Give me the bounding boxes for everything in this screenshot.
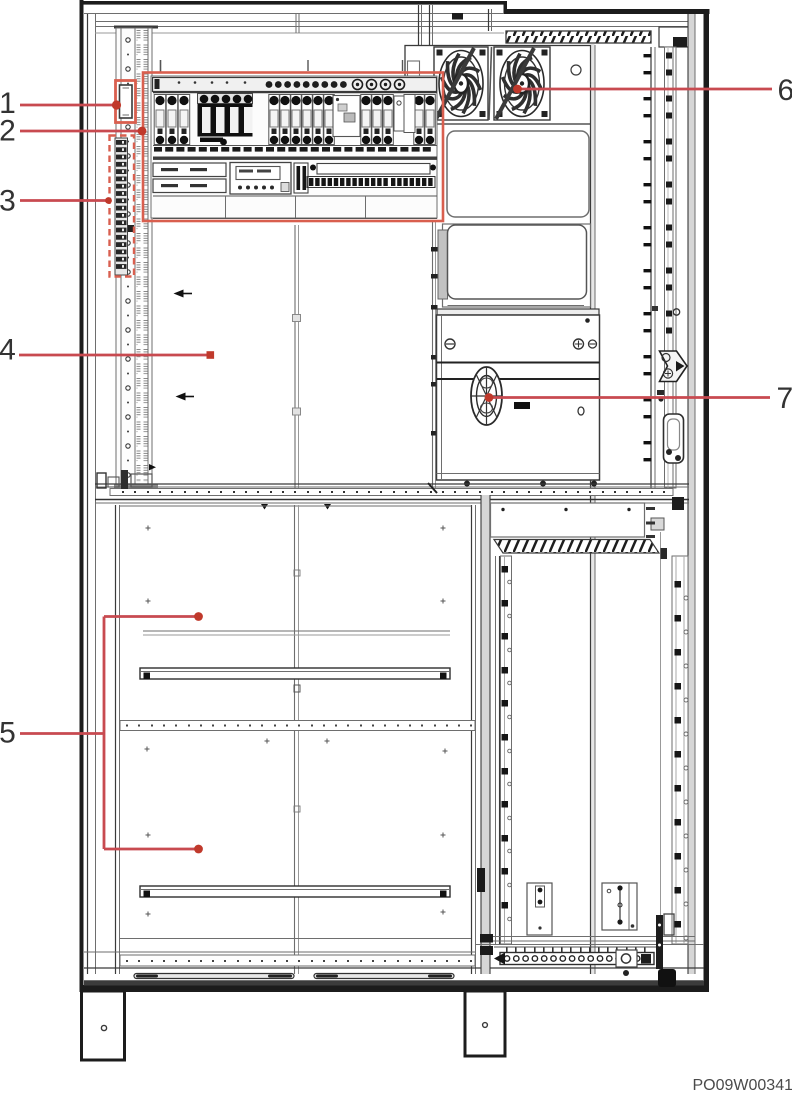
svg-text:6: 6 bbox=[778, 74, 792, 107]
svg-text:3: 3 bbox=[0, 185, 16, 218]
svg-text:2: 2 bbox=[0, 115, 16, 148]
svg-text:4: 4 bbox=[0, 334, 16, 367]
svg-text:7: 7 bbox=[777, 382, 792, 415]
svg-text:5: 5 bbox=[0, 717, 16, 750]
svg-text:PO09W00341: PO09W00341 bbox=[692, 1077, 792, 1094]
